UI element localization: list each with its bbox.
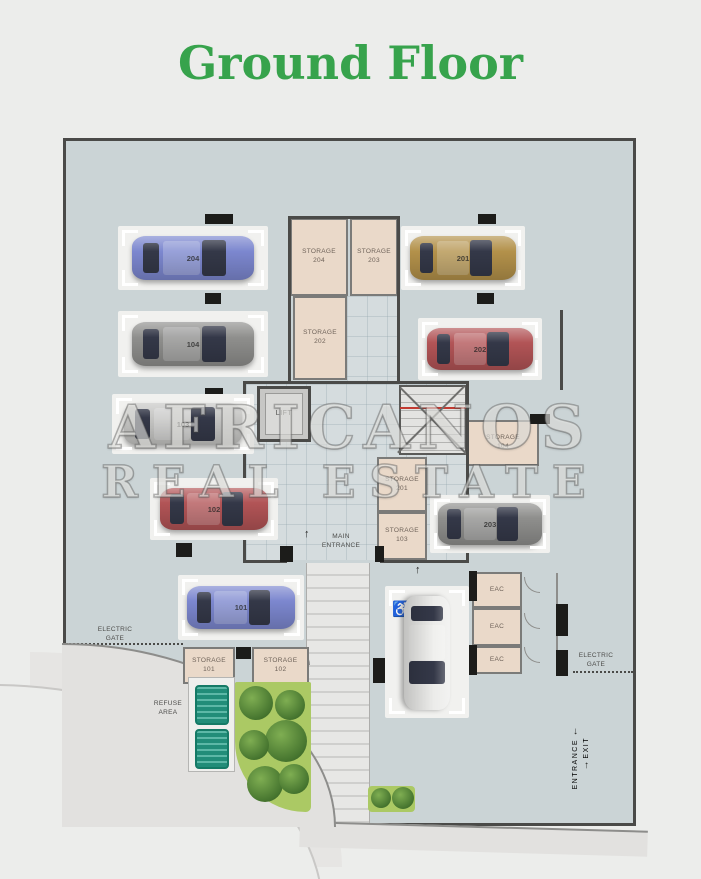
- wall-tick: [530, 414, 550, 424]
- stair-guide-line: [400, 407, 466, 409]
- storage-103: STORAGE103: [377, 512, 427, 560]
- exit-column: EXIT ↑: [583, 727, 590, 811]
- car-number: 202: [427, 328, 533, 370]
- refuse-bin: [195, 685, 229, 725]
- storage-103-label: STORAGE103: [379, 514, 425, 558]
- car-handicap: [404, 596, 450, 710]
- electric-gate-right-line: [573, 671, 633, 673]
- tree: [265, 720, 307, 762]
- entrance-column: ↓ ENTRANCE: [572, 727, 579, 811]
- car-102: 102: [160, 488, 268, 530]
- car-number: 102: [160, 488, 268, 530]
- tree: [371, 788, 391, 808]
- parking-stall-203: 203: [430, 495, 550, 553]
- stall-corner-bracket: [389, 698, 405, 714]
- storage-202: STORAGE202: [293, 296, 347, 380]
- storage-104: STORAGE104: [467, 420, 539, 466]
- storage-201: STORAGE201: [377, 457, 427, 512]
- wall-tick: [236, 647, 251, 659]
- wall-tick: [205, 214, 233, 224]
- wall-tick: [373, 658, 385, 683]
- tree: [239, 730, 269, 760]
- storage-204-label: STORAGE204: [292, 220, 346, 294]
- car-roof: [409, 625, 445, 660]
- car-201: 201: [410, 236, 516, 280]
- electric-gate-right-label: ELECTRICGATE: [574, 652, 618, 670]
- wall-tick: [556, 650, 568, 676]
- car-rear-glass: [411, 606, 443, 621]
- door-arc: [524, 647, 540, 663]
- car-number: 101: [187, 586, 295, 629]
- storage-203-label: STORAGE203: [352, 220, 396, 294]
- site-plan: LIFT STORAGE204 STORAGE203 STORAGE202 ST…: [66, 141, 633, 823]
- corridor: [347, 296, 397, 384]
- door-arc: [524, 613, 540, 629]
- eac-label: EAC: [474, 648, 520, 672]
- parking-stall-202: 202: [418, 318, 542, 380]
- main-entrance-label: MAINENTRANCE: [314, 533, 368, 551]
- storage-202-label: STORAGE202: [295, 298, 345, 378]
- refuse-area: [188, 677, 235, 772]
- floor-plan-page: Ground Floor LIFT STORAGE204 STORAGE203 …: [0, 0, 701, 879]
- storage-204: STORAGE204: [290, 218, 348, 296]
- eac-room-1: EAC: [472, 572, 522, 608]
- stall-corner-bracket: [449, 590, 465, 606]
- lift-label: LIFT: [260, 389, 308, 439]
- stall-corner-bracket: [449, 698, 465, 714]
- wall: [380, 560, 469, 563]
- main-entrance-arrow: ↑: [304, 529, 310, 540]
- wall: [243, 381, 469, 384]
- arrow-down: ↓: [573, 727, 578, 737]
- walk-arrow-up: ↑: [415, 565, 421, 576]
- parking-stall-handicap: ♿: [385, 586, 469, 718]
- storage-203: STORAGE203: [350, 218, 398, 296]
- car-number: 201: [410, 236, 516, 280]
- car-windshield: [409, 661, 446, 684]
- car-101: 101: [187, 586, 295, 629]
- stall-corner-bracket: [389, 590, 405, 606]
- car-103: 103: [124, 403, 242, 445]
- car-number: 203: [438, 503, 542, 545]
- tree: [275, 690, 305, 720]
- tree: [392, 787, 414, 809]
- parking-stall-201: 201: [401, 226, 525, 290]
- parking-stall-104: 104: [118, 311, 268, 377]
- tree: [279, 764, 309, 794]
- parking-stall-204: 204: [118, 226, 268, 290]
- wall-tick: [205, 293, 221, 304]
- wall-tick: [280, 546, 293, 562]
- garden-patch: [368, 786, 415, 812]
- parking-stall-101: 101: [178, 575, 304, 640]
- car-number: 104: [132, 322, 254, 366]
- car-202: 202: [427, 328, 533, 370]
- eac-label: EAC: [474, 574, 520, 606]
- refuse-bin: [195, 729, 229, 769]
- car-203: 203: [438, 503, 542, 545]
- road-bottom-strip: [299, 821, 648, 857]
- storage-104-label: STORAGE104: [469, 422, 537, 464]
- wall-tick: [556, 604, 568, 636]
- car-number: 103: [124, 403, 242, 445]
- wall-tick: [477, 293, 494, 304]
- tree: [247, 766, 283, 802]
- arrow-up: ↑: [584, 761, 589, 771]
- exit-label: EXIT: [583, 737, 590, 759]
- eac-room-2: EAC: [472, 608, 522, 646]
- storage-201-label: STORAGE201: [379, 459, 425, 510]
- refuse-area-label: REFUSEAREA: [146, 700, 190, 718]
- parking-stall-102: 102: [150, 478, 278, 540]
- car-104: 104: [132, 322, 254, 366]
- eac-room-3: EAC: [472, 646, 522, 674]
- car-number: 204: [132, 236, 254, 280]
- wall-tick: [478, 214, 496, 224]
- car-204: 204: [132, 236, 254, 280]
- storage-102: STORAGE102: [252, 647, 309, 684]
- storage-102-label: STORAGE102: [254, 649, 307, 682]
- entrance-exit-right: ↓ ENTRANCE EXIT ↑: [572, 727, 590, 811]
- tree: [239, 686, 273, 720]
- electric-gate-left-label: ELECTRICGATE: [90, 626, 140, 644]
- eac-label: EAC: [474, 610, 520, 644]
- wall: [560, 310, 563, 390]
- door-arc: [524, 577, 540, 593]
- wall: [397, 216, 400, 384]
- parking-stall-103: 103: [112, 394, 254, 454]
- wall-tick: [469, 571, 477, 601]
- wall: [288, 216, 291, 384]
- lift-room: LIFT: [257, 386, 311, 442]
- wall-tick: [375, 546, 384, 562]
- page-title: Ground Floor: [0, 36, 701, 90]
- wall-tick: [469, 645, 477, 675]
- entrance-label: ENTRANCE: [572, 739, 579, 790]
- wall: [288, 216, 400, 219]
- wall-tick: [176, 543, 192, 557]
